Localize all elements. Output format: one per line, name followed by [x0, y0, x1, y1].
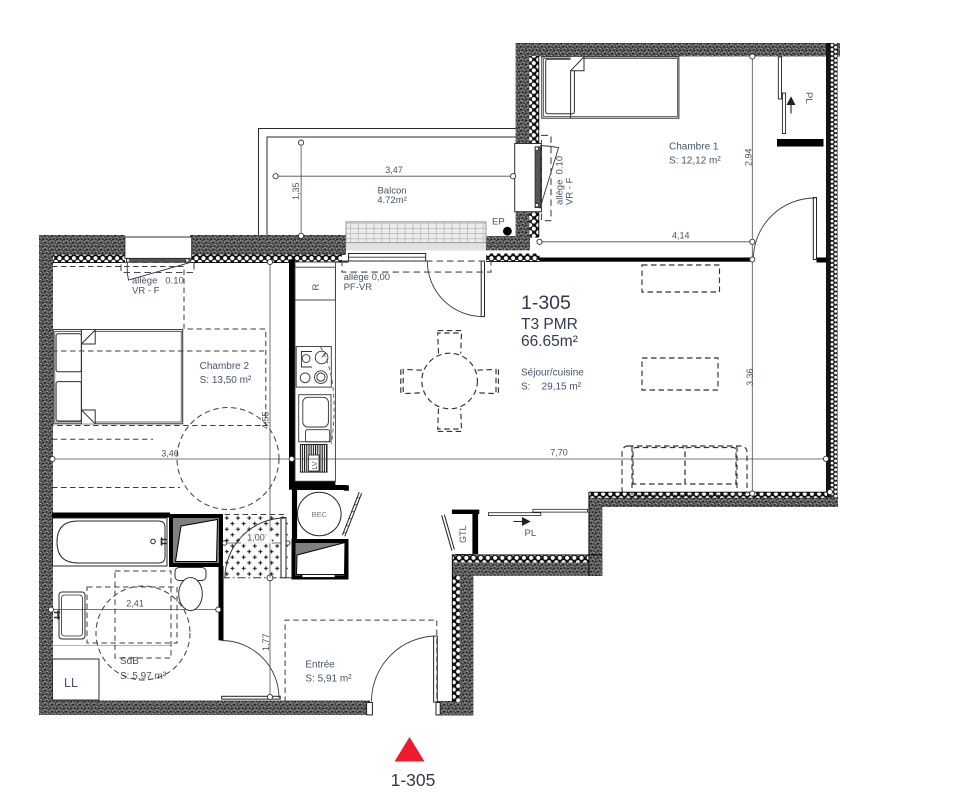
- svg-text:T3 PMR: T3 PMR: [521, 316, 578, 333]
- svg-text:VR - F: VR - F: [132, 286, 160, 297]
- svg-text:1-305: 1-305: [391, 770, 436, 790]
- svg-text:2,94: 2,94: [744, 148, 754, 166]
- svg-text:1,00: 1,00: [247, 533, 265, 543]
- svg-text:EP: EP: [492, 217, 505, 228]
- svg-text:Chambre 2: Chambre 2: [200, 361, 250, 372]
- svg-text:Séjour/cuisine: Séjour/cuisine: [521, 368, 584, 379]
- svg-text:1,35: 1,35: [291, 182, 301, 200]
- svg-text:3.36: 3.36: [745, 368, 755, 386]
- svg-text:PL: PL: [525, 528, 537, 539]
- svg-text:S: 5,91 m²: S: 5,91 m²: [305, 674, 352, 685]
- svg-text:R: R: [311, 284, 322, 291]
- svg-text:GTL: GTL: [458, 525, 468, 543]
- svg-text:1-305: 1-305: [521, 292, 571, 314]
- svg-text:66.65m²: 66.65m²: [521, 333, 578, 350]
- svg-text:4.72m²: 4.72m²: [377, 195, 407, 206]
- svg-text:Chambre 1: Chambre 1: [669, 142, 719, 153]
- svg-text:1,77: 1,77: [261, 633, 271, 651]
- svg-text:LL: LL: [64, 676, 78, 690]
- svg-text:BEC: BEC: [312, 510, 328, 519]
- svg-text:PL: PL: [803, 92, 814, 104]
- svg-text:7,70: 7,70: [550, 448, 568, 458]
- svg-text:Entrée: Entrée: [305, 660, 335, 671]
- svg-text:3,46: 3,46: [161, 449, 179, 459]
- svg-text:S: 29,15 m²: S: 29,15 m²: [521, 382, 582, 393]
- svg-text:S: 12,12 m²: S: 12,12 m²: [669, 156, 721, 167]
- svg-text:2,41: 2,41: [126, 599, 144, 609]
- svg-text:3,47: 3,47: [385, 165, 403, 175]
- svg-text:S: 13,50 m²: S: 13,50 m²: [200, 375, 252, 386]
- svg-text:LV: LV: [312, 461, 319, 469]
- svg-text:PF-VR: PF-VR: [344, 282, 373, 293]
- svg-text:4,14: 4,14: [672, 231, 690, 241]
- svg-text:VR - F: VR - F: [565, 177, 576, 205]
